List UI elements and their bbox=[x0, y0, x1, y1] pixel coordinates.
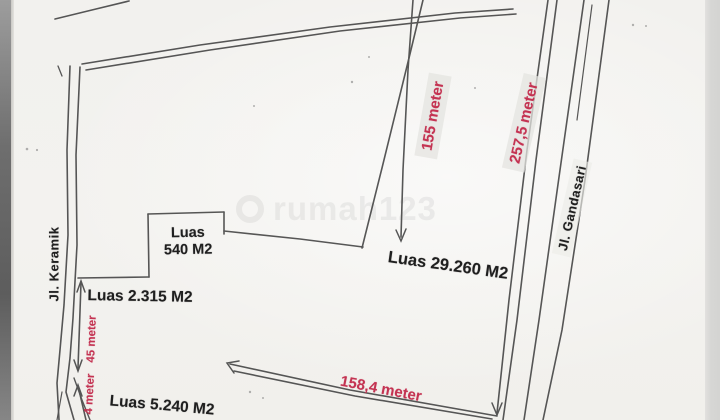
road-keramik-lines bbox=[57, 66, 90, 420]
site-plan-sketch bbox=[0, 0, 720, 420]
plot-540-notch-boundary bbox=[78, 212, 363, 278]
measurement-partial-4-meter: 4 meter bbox=[83, 373, 97, 414]
area-label-540-line2: 540 M2 bbox=[164, 242, 213, 260]
scanned-site-plan: rumah123 bbox=[0, 0, 720, 420]
road-gandasari-lines bbox=[497, 0, 609, 420]
area-label-540-line1: Luas bbox=[164, 225, 213, 243]
measurement-45-meter: 45 meter bbox=[85, 315, 99, 363]
area-label-2315: Luas 2.315 M2 bbox=[87, 287, 192, 307]
dimension-line-155 bbox=[362, 0, 423, 248]
area-label-540: Luas 540 M2 bbox=[164, 225, 213, 260]
street-label-keramik: Jl. Keramik bbox=[47, 227, 62, 302]
north-boundary-line bbox=[55, 1, 516, 76]
